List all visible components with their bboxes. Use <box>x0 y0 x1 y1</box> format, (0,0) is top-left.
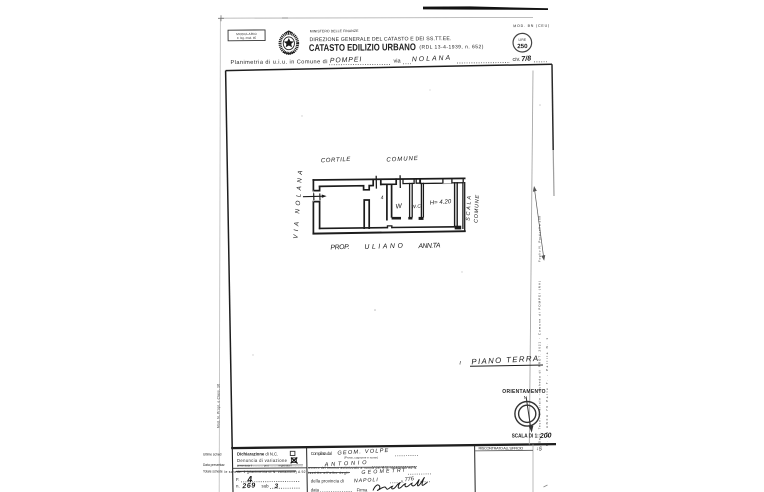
svg-text:F. leg. mod. 85: F. leg. mod. 85 <box>237 36 256 40</box>
svg-text:RISCONTRATO ALL'UFFICIO: RISCONTRATO ALL'UFFICIO <box>479 446 524 450</box>
svg-text:ANN.TA: ANN.TA <box>417 242 441 250</box>
svg-text:sub: sub <box>262 484 270 489</box>
svg-text:civ.: civ. <box>512 57 520 63</box>
svg-text:SCALA: SCALA <box>466 195 473 221</box>
svg-text:Firma: Firma <box>357 487 368 492</box>
svg-text:Dichiarazione di N.C.: Dichiarazione di N.C. <box>237 451 278 456</box>
svg-text:n.: n. <box>236 484 240 489</box>
svg-text:VIA NOLANA: VIA NOLANA <box>293 169 305 239</box>
svg-text:Ultime sched: Ultime sched <box>203 453 222 457</box>
svg-text:CORTILE: CORTILE <box>321 157 352 165</box>
svg-text:NAPOLI: NAPOLI <box>354 477 379 484</box>
svg-text:H= 4.20: H= 4.20 <box>430 199 453 207</box>
svg-text:SCALA DI 1:: SCALA DI 1: <box>512 433 539 439</box>
svg-text:PIANO TERRA: PIANO TERRA <box>471 354 539 367</box>
svg-text:7/8: 7/8 <box>521 55 531 63</box>
svg-text:F.: F. <box>236 477 239 482</box>
svg-text:NOLANA: NOLANA <box>412 55 452 64</box>
svg-text:COMUNE: COMUNE <box>386 156 419 164</box>
svg-text:Mod. N. Propr. e Class. 16: Mod. N. Propr. e Class. 16 <box>217 384 221 428</box>
svg-text:(Prova, cognome e nome): (Prova, cognome e nome) <box>344 455 378 459</box>
svg-text:Planimetria di u.i.u. in Comun: Planimetria di u.i.u. in Comune di <box>230 59 327 66</box>
svg-text:della provincia di: della provincia di <box>311 479 344 484</box>
svg-text:200: 200 <box>539 432 552 440</box>
svg-text:MOD. BN (CEU): MOD. BN (CEU) <box>513 24 549 28</box>
svg-text:COMUNE: COMUNE <box>474 194 482 223</box>
svg-text:GEOMETRI: GEOMETRI <box>361 468 405 476</box>
svg-text:le schede: 1 (planimetria di N: le schede: 1 (planimetria di N. variazio… <box>225 470 306 474</box>
svg-text:↓5: ↓5 <box>536 446 543 453</box>
svg-text:Data presentaz: Data presentaz <box>203 463 225 467</box>
svg-text:data: data <box>311 487 320 492</box>
svg-text:(RDL 13-4-1939, n. 652): (RDL 13-4-1939, n. 652) <box>419 44 483 51</box>
svg-text:Foglio N. Particella 269: Foglio N. Particella 269 <box>538 216 542 262</box>
svg-text:LIRE: LIRE <box>519 38 527 42</box>
svg-text:W.C.: W.C. <box>411 203 423 210</box>
svg-text:3: 3 <box>275 483 279 490</box>
svg-text:via: via <box>393 58 401 64</box>
svg-text:ι: ι <box>460 361 462 367</box>
svg-text:4: 4 <box>380 195 384 201</box>
svg-text:MINISTERO DELLE FINANZE: MINISTERO DELLE FINANZE <box>310 29 359 33</box>
svg-text:776: 776 <box>404 476 415 483</box>
svg-text:Totale schede: Totale schede <box>203 470 223 474</box>
svg-text:Denuncia di variazione: Denuncia di variazione <box>237 458 288 463</box>
svg-text:PROP.: PROP. <box>330 244 350 252</box>
svg-text:ULIANO: ULIANO <box>364 243 404 251</box>
svg-text:POMPEI: POMPEI <box>330 56 363 64</box>
svg-text:W: W <box>395 203 403 211</box>
svg-text:CATASTO EDILIZIO URBANO: CATASTO EDILIZIO URBANO <box>309 42 417 54</box>
svg-text:269: 269 <box>241 482 256 490</box>
svg-text:250: 250 <box>517 43 528 50</box>
svg-text:Compilata dal: Compilata dal <box>311 451 332 456</box>
